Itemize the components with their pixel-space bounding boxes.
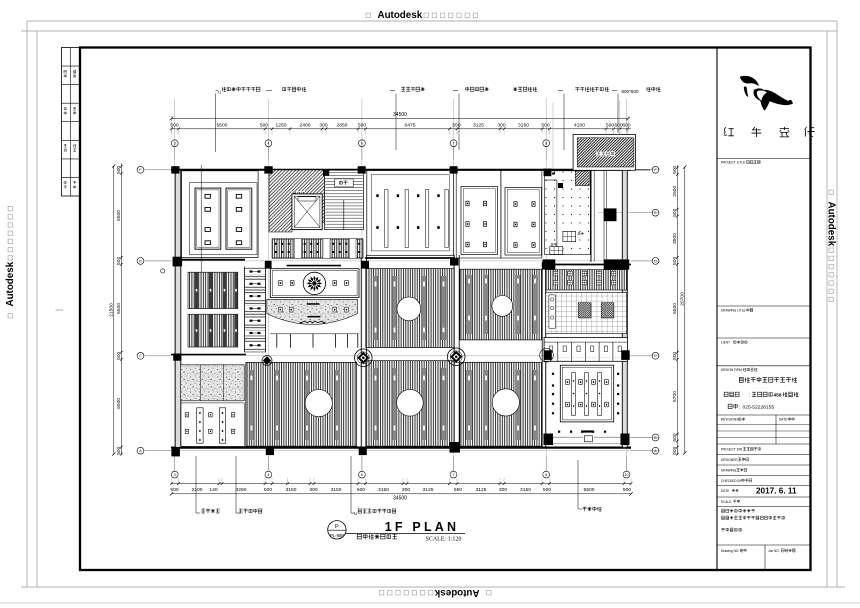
svg-text:DATE: DATE xyxy=(779,418,787,422)
svg-text:3: 3 xyxy=(174,473,176,477)
svg-text:3: 3 xyxy=(174,142,176,146)
svg-text:4: 4 xyxy=(267,473,269,477)
svg-text:550: 550 xyxy=(452,123,460,129)
svg-text:2650: 2650 xyxy=(337,123,348,129)
svg-text:458: 458 xyxy=(774,393,782,399)
svg-text:SCALE: 1:120: SCALE: 1:120 xyxy=(426,537,462,543)
svg-text:6: 6 xyxy=(361,142,363,146)
svg-text:500: 500 xyxy=(672,165,678,173)
svg-text:600*600: 600*600 xyxy=(621,89,639,94)
svg-text:3125: 3125 xyxy=(476,487,487,493)
svg-text:500: 500 xyxy=(543,487,551,493)
svg-text:6500: 6500 xyxy=(217,123,228,129)
svg-text:300: 300 xyxy=(497,123,505,129)
svg-text:1F PLAN: 1F PLAN xyxy=(385,520,460,534)
svg-text:Autodesk: Autodesk xyxy=(434,587,479,598)
svg-text:500: 500 xyxy=(672,351,678,359)
svg-text:3150: 3150 xyxy=(520,487,531,493)
svg-text:PROJECT DIR: PROJECT DIR xyxy=(721,447,743,451)
svg-text:1250: 1250 xyxy=(276,123,287,129)
svg-text:21500: 21500 xyxy=(109,303,115,317)
svg-text:500: 500 xyxy=(358,123,366,129)
svg-text:DATE: DATE xyxy=(721,489,729,493)
svg-text:Drawing NO.: Drawing NO. xyxy=(721,549,739,553)
svg-text:500: 500 xyxy=(260,123,268,129)
svg-text:7: 7 xyxy=(453,473,455,477)
svg-text:4100: 4100 xyxy=(574,123,585,129)
svg-text:D: D xyxy=(139,259,142,263)
svg-text:C: C xyxy=(654,354,657,358)
svg-text:Autodesk: Autodesk xyxy=(5,261,16,306)
svg-text:PL-888: PL-888 xyxy=(330,533,344,538)
svg-text:LIENT: LIENT xyxy=(721,341,730,345)
svg-text:34500: 34500 xyxy=(393,112,407,118)
svg-text:3150: 3150 xyxy=(378,487,389,493)
svg-text:u: u xyxy=(354,511,357,516)
svg-text:5500: 5500 xyxy=(584,487,595,493)
svg-text:REVISIONS: REVISIONS xyxy=(721,418,738,422)
svg-text:Autodesk: Autodesk xyxy=(378,10,423,21)
svg-text:300: 300 xyxy=(402,487,410,493)
svg-text:500: 500 xyxy=(541,123,549,129)
svg-text:7: 7 xyxy=(453,142,455,146)
svg-text:DESIGN FIRM: DESIGN FIRM xyxy=(721,368,742,372)
svg-text:3150: 3150 xyxy=(331,487,342,493)
svg-text:500: 500 xyxy=(672,433,678,441)
svg-text:500: 500 xyxy=(623,487,631,493)
svg-text:500: 500 xyxy=(116,257,122,265)
svg-text:PROJECT LITLE: PROJECT LITLE xyxy=(721,161,745,165)
svg-text:500: 500 xyxy=(672,208,678,216)
svg-text:500: 500 xyxy=(170,487,178,493)
svg-text:3125: 3125 xyxy=(473,123,484,129)
svg-text:3125: 3125 xyxy=(423,487,434,493)
svg-text:2100: 2100 xyxy=(192,487,203,493)
svg-text:Autodesk: Autodesk xyxy=(826,202,837,247)
svg-text:DRAWING LITLE: DRAWING LITLE xyxy=(721,309,746,313)
svg-text:140: 140 xyxy=(209,487,217,493)
svg-text:500: 500 xyxy=(116,446,122,454)
svg-text:C: C xyxy=(139,354,142,358)
svg-text:DESIGNER: DESIGNER xyxy=(721,458,738,462)
svg-text:500: 500 xyxy=(672,446,678,454)
svg-text:3150: 3150 xyxy=(286,487,297,493)
svg-text:10: 10 xyxy=(625,473,629,477)
svg-text:550: 550 xyxy=(454,487,462,493)
svg-text:SCALE: SCALE xyxy=(721,500,731,504)
svg-text:6500: 6500 xyxy=(116,398,122,409)
svg-text:500: 500 xyxy=(264,487,272,493)
svg-text:8: 8 xyxy=(545,473,547,477)
svg-text:6: 6 xyxy=(361,473,363,477)
svg-text:D: D xyxy=(654,259,657,263)
svg-text:P: P xyxy=(335,524,339,530)
svg-text:5700: 5700 xyxy=(672,391,678,402)
svg-text:6500: 6500 xyxy=(116,210,122,221)
svg-text:4260: 4260 xyxy=(236,487,247,493)
svg-text:3500: 3500 xyxy=(672,233,678,244)
svg-text:600: 600 xyxy=(622,123,630,129)
svg-text:500: 500 xyxy=(116,165,122,173)
svg-text:2500: 2500 xyxy=(672,185,678,196)
svg-text:500: 500 xyxy=(357,487,365,493)
svg-text::: : xyxy=(749,393,750,399)
svg-text:6500: 6500 xyxy=(116,303,122,314)
svg-text:CHECKED BY: CHECKED BY xyxy=(721,479,743,483)
svg-text:20700: 20700 xyxy=(680,292,686,306)
svg-text:300: 300 xyxy=(319,123,327,129)
svg-text:2017. 6. 11: 2017. 6. 11 xyxy=(756,487,797,496)
svg-text:u: u xyxy=(218,89,221,94)
svg-text:6500: 6500 xyxy=(672,303,678,314)
svg-text:DRAWING: DRAWING xyxy=(721,468,737,472)
svg-text:500: 500 xyxy=(672,257,678,265)
svg-text:34500: 34500 xyxy=(393,496,407,502)
svg-text:300: 300 xyxy=(499,487,507,493)
svg-text:300: 300 xyxy=(309,487,317,493)
svg-text::: : xyxy=(739,405,740,411)
svg-text:8: 8 xyxy=(545,142,547,146)
svg-text:4: 4 xyxy=(267,142,269,146)
svg-text:3150: 3150 xyxy=(518,123,529,129)
svg-text:500: 500 xyxy=(606,123,614,129)
svg-text:025-52228155: 025-52228155 xyxy=(743,405,775,411)
svg-text:500: 500 xyxy=(116,351,122,359)
svg-text:6475: 6475 xyxy=(405,123,416,129)
svg-text:2400: 2400 xyxy=(300,123,311,129)
svg-text:Job NO.: Job NO. xyxy=(768,549,780,553)
